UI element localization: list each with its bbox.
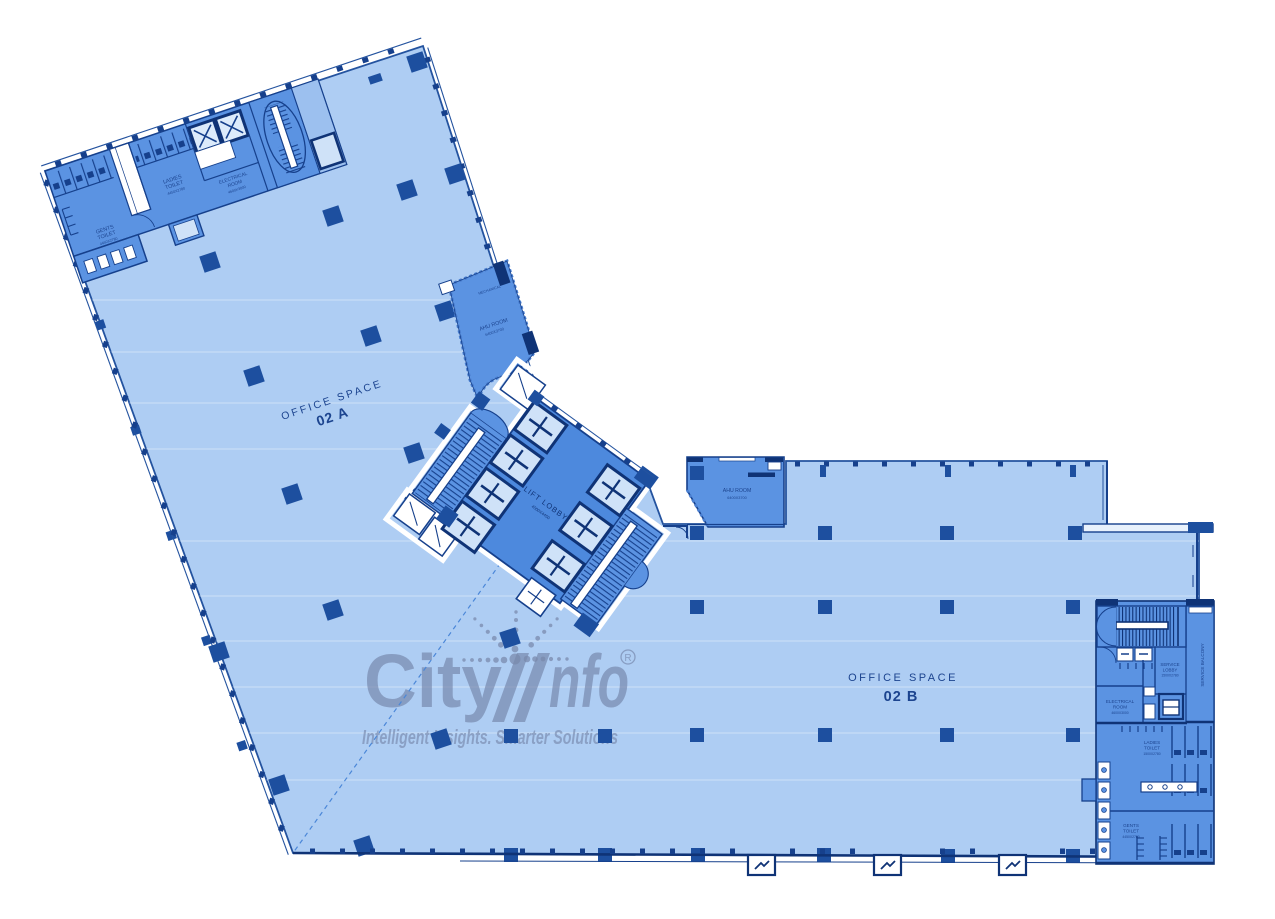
svg-text:1500X2780: 1500X2780 [1161,674,1178,678]
svg-text:6400X3700: 6400X3700 [727,496,746,500]
svg-text:nfo: nfo [549,639,629,723]
svg-text:ROOM: ROOM [1113,705,1127,710]
svg-text:SERVICE BALCONY: SERVICE BALCONY [1200,643,1205,686]
svg-text:LOBBY: LOBBY [1163,667,1178,672]
svg-text:Intelligent Insights. Smarter: Intelligent Insights. Smarter Solutions [362,726,618,749]
svg-text:TOILET: TOILET [1144,746,1160,751]
svg-text:1500X2780: 1500X2780 [1143,752,1160,756]
svg-text:City: City [364,639,502,723]
svg-text:LADIES: LADIES [1144,740,1160,745]
svg-text:GENTS: GENTS [1123,823,1139,828]
svg-text:AHU ROOM: AHU ROOM [723,488,752,494]
svg-text:R: R [624,653,631,664]
svg-text:TOILET: TOILET [1123,829,1139,834]
svg-text:4600X3000: 4600X3000 [1111,711,1128,715]
svg-text:OFFICE SPACE: OFFICE SPACE [848,672,958,684]
svg-text:SERVICE: SERVICE [1160,662,1179,667]
svg-text:02 B: 02 B [884,689,919,705]
svg-text:ELECTRICAL: ELECTRICAL [1106,699,1135,704]
